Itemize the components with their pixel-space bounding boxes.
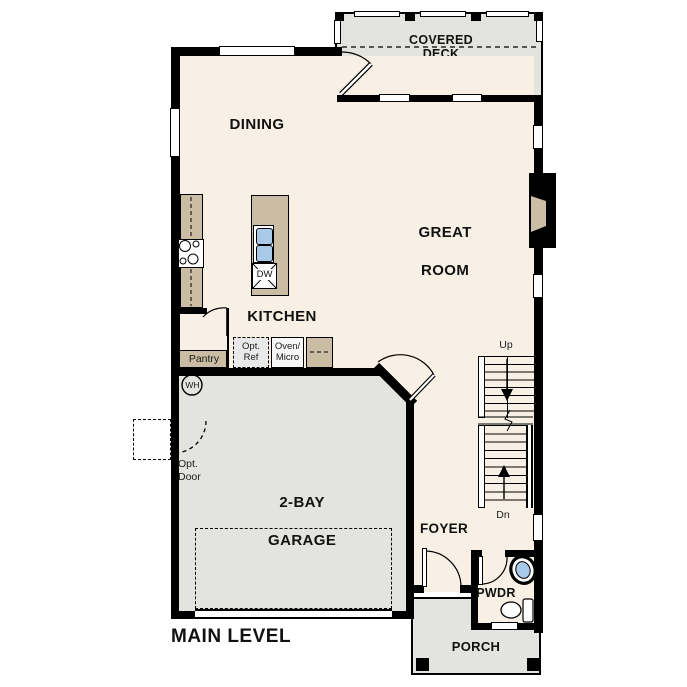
deck-rail-window xyxy=(536,20,543,42)
stairs-rail xyxy=(478,425,485,508)
porch-post xyxy=(527,658,540,671)
deck-rail-window xyxy=(420,11,466,17)
opt-door-label: Opt. Door xyxy=(178,458,201,483)
room-label-garage: 2-BAY GARAGE xyxy=(233,474,353,569)
kitchen-counter-right xyxy=(306,337,333,368)
window xyxy=(170,108,180,157)
stairs-break-gap xyxy=(478,418,534,424)
window xyxy=(533,274,543,298)
powder-door-leaf xyxy=(478,556,483,585)
stairs-lower-rail xyxy=(526,425,533,508)
room-label-powder: PWDR xyxy=(466,586,526,600)
window xyxy=(379,94,410,102)
room-label-kitchen: KITCHEN xyxy=(232,307,332,326)
window xyxy=(491,622,518,630)
deck-rail-window xyxy=(354,11,400,17)
deck-rail-window xyxy=(486,11,529,17)
stairs-rail xyxy=(478,356,485,418)
deck-post xyxy=(405,12,415,21)
window xyxy=(219,46,295,56)
dishwasher-label: DW xyxy=(252,269,277,280)
room-label-dining: DINING xyxy=(207,115,307,134)
room-label-porch: PORCH xyxy=(426,640,526,654)
window xyxy=(452,94,482,102)
deck-post xyxy=(471,12,481,21)
room-label-great-room: GREAT ROOM xyxy=(376,204,496,299)
island-sink-basin xyxy=(256,245,273,262)
stairs-up-label: Up xyxy=(491,339,521,352)
front-door-leaf xyxy=(422,548,427,587)
opt-ref-box: Opt. Ref xyxy=(233,337,269,368)
opt-door-bump xyxy=(133,419,171,460)
porch-post xyxy=(416,658,429,671)
stairs-upper-centerline xyxy=(507,356,508,418)
cooktop xyxy=(178,239,204,268)
stairs-down-label: Dn xyxy=(488,509,518,522)
powder-wall-top xyxy=(505,550,543,557)
pantry-wall-right xyxy=(227,308,229,368)
pantry-wall xyxy=(176,308,207,314)
window xyxy=(533,514,543,541)
floor-plan: COVERED DECK DINING GREAT ROOM KITCHEN F… xyxy=(0,0,687,687)
fireplace xyxy=(529,173,556,248)
island-sink-basin xyxy=(256,228,273,245)
stairs-lower-flight xyxy=(484,425,527,508)
wall-left xyxy=(171,47,180,370)
water-heater-label: WH xyxy=(182,380,203,390)
deck-rail-window xyxy=(334,20,341,44)
room-label-foyer: FOYER xyxy=(409,522,479,536)
stairs-upper-flight xyxy=(484,356,534,418)
oven-micro-box: Oven/ Micro xyxy=(271,337,304,368)
plan-title: MAIN LEVEL xyxy=(171,626,291,648)
pantry-label: Pantry xyxy=(181,353,227,366)
window xyxy=(533,125,543,149)
garage-door xyxy=(195,609,392,619)
wall-deck-house xyxy=(337,95,543,102)
